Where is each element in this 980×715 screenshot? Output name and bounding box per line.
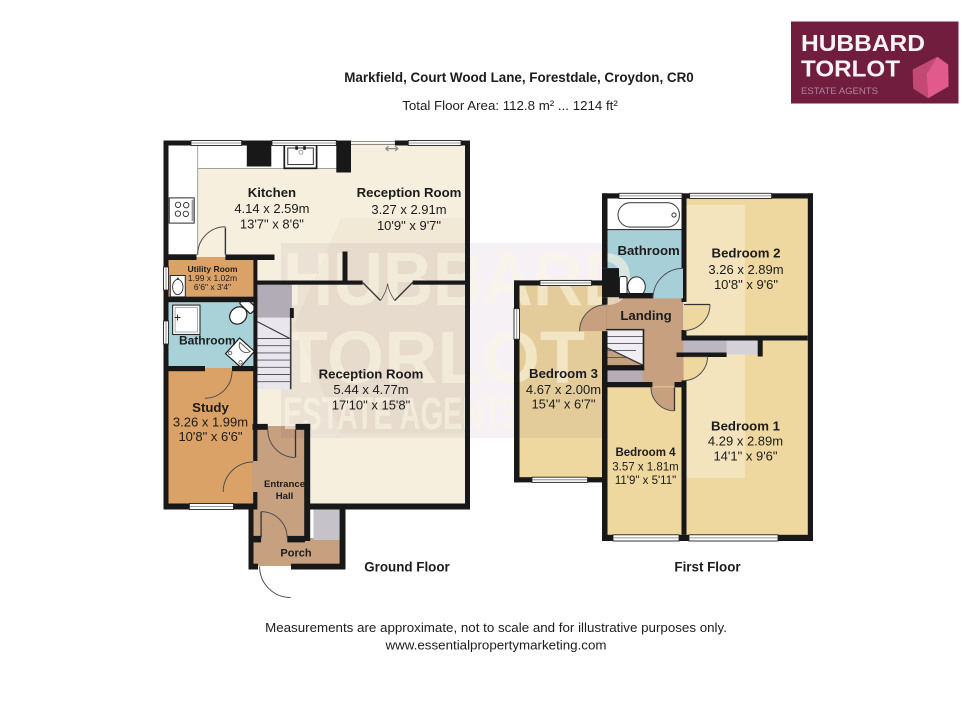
svg-text:Reception Room: Reception Room (319, 366, 424, 381)
svg-text:Hall: Hall (276, 491, 294, 502)
svg-text:HUBBARD: HUBBARD (801, 30, 925, 56)
svg-text:Bedroom 2: Bedroom 2 (712, 246, 781, 261)
svg-text:4.14 x 2.59m: 4.14 x 2.59m (234, 201, 309, 216)
svg-text:Bedroom 3: Bedroom 3 (529, 366, 598, 381)
svg-text:3.26 x 2.89m: 3.26 x 2.89m (708, 262, 783, 277)
svg-text:First Floor: First Floor (674, 560, 741, 575)
svg-text:Bathroom: Bathroom (179, 333, 236, 347)
svg-text:Kitchen: Kitchen (248, 185, 296, 200)
svg-text:10'8" x 9'6": 10'8" x 9'6" (714, 277, 778, 292)
svg-text:Measurements are approximate,: Measurements are approximate, not to sca… (265, 620, 727, 635)
svg-text:HUBBARD: HUBBARD (283, 237, 633, 321)
svg-text:14'1" x 9'6": 14'1" x 9'6" (713, 449, 777, 464)
svg-text:11'9" x 5'11": 11'9" x 5'11" (615, 475, 676, 487)
svg-text:15'4" x 6'7": 15'4" x 6'7" (531, 397, 595, 412)
svg-text:3.27 x 2.91m: 3.27 x 2.91m (371, 202, 446, 217)
svg-text:Reception Room: Reception Room (357, 185, 462, 200)
svg-text:Study: Study (192, 400, 229, 415)
svg-text:6'6" x 3'4": 6'6" x 3'4" (194, 282, 231, 292)
svg-text:Landing: Landing (620, 308, 671, 323)
svg-text:10'8" x 6'6": 10'8" x 6'6" (178, 429, 242, 444)
svg-text:www.essentialpropertymarketing: www.essentialpropertymarketing.com (385, 638, 607, 653)
svg-text:4.29 x 2.89m: 4.29 x 2.89m (708, 434, 783, 449)
svg-text:Bathroom: Bathroom (617, 243, 679, 258)
svg-text:4.67 x 2.00m: 4.67 x 2.00m (526, 382, 601, 397)
svg-text:17'10" x 15'8": 17'10" x 15'8" (332, 398, 411, 413)
svg-text:TORLOT: TORLOT (801, 56, 900, 82)
svg-text:Ground Floor: Ground Floor (364, 560, 450, 575)
svg-text:5.44 x 4.77m: 5.44 x 4.77m (333, 382, 408, 397)
svg-text:3.57 x 1.81m: 3.57 x 1.81m (612, 461, 678, 473)
svg-text:Total Floor Area: 112.8 m² ...: Total Floor Area: 112.8 m² ... 1214 ft² (402, 98, 618, 113)
svg-text:Bedroom 1: Bedroom 1 (711, 419, 780, 434)
svg-text:Entrance: Entrance (264, 479, 305, 490)
svg-text:Bedroom 4: Bedroom 4 (615, 447, 676, 459)
svg-text:Markfield, Court Wood Lane, Fo: Markfield, Court Wood Lane, Forestdale, … (344, 70, 693, 85)
svg-text:10'9" x 9'7": 10'9" x 9'7" (377, 218, 441, 233)
svg-text:Porch: Porch (280, 548, 311, 560)
svg-text:13'7" x 8'6": 13'7" x 8'6" (240, 216, 304, 231)
svg-text:3.26 x 1.99m: 3.26 x 1.99m (173, 415, 248, 430)
svg-text:ESTATE AGENTS: ESTATE AGENTS (801, 86, 878, 97)
